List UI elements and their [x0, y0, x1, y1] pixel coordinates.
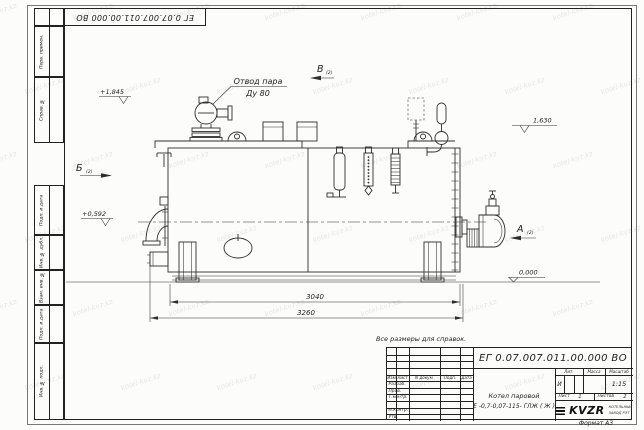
- front-top-valve: [157, 153, 171, 167]
- pump-fins: [470, 229, 478, 247]
- tb-col-izm: Изм: [387, 375, 396, 382]
- dimension-shell-length: 3040: [170, 284, 460, 306]
- tb-row-utv: Утв.: [387, 414, 411, 421]
- tb-scale-header: Масштаб: [605, 368, 633, 375]
- elev-1630: 1,630: [533, 117, 552, 125]
- tb-col-list: Лист: [396, 375, 409, 382]
- tb-sheets-label: Листов: [596, 393, 622, 400]
- view-a-ref: (2): [527, 230, 534, 236]
- burner-elbow: [143, 197, 168, 246]
- tb-row-prov: Пров.: [387, 388, 411, 395]
- tb-col-podp: Подп.: [440, 375, 460, 382]
- top-platform: [155, 141, 302, 148]
- lifting-lugs: [228, 132, 432, 141]
- kvzr-logo-text: KVZR: [569, 404, 604, 417]
- view-label-b: Б (2): [76, 163, 112, 178]
- company-name-line2: ЗАВОД РЭТ: [609, 411, 632, 416]
- tb-sheet-label: Лист: [557, 393, 577, 400]
- view-label-v: В (2): [310, 64, 334, 80]
- tb-row-blank: [387, 401, 411, 408]
- gauge-ladder-marks: [391, 158, 400, 183]
- tb-sheet-value: 1: [575, 393, 585, 400]
- dim-3040: 3040: [306, 293, 324, 301]
- tb-name-line2: Е -0,7-0,07-115- ГЛЖ ( Ж ): [473, 402, 555, 412]
- tb-product-name: Котел паровой Е -0,7-0,07-115- ГЛЖ ( Ж ): [473, 368, 555, 428]
- steam-outlet-callout: Отвод пара Ду 80: [213, 77, 287, 104]
- drawing-sheet: { "watermark": { "text": "kotel-kvz.kz" …: [0, 0, 644, 430]
- title-block: ЕГ 0.07.007.011.00.000 ВО Изм Лист N док…: [386, 347, 632, 420]
- tb-col-ndocum: N докум.: [409, 375, 440, 382]
- tb-row-razrab: Разраб.: [387, 381, 411, 388]
- rear-top-band: [408, 141, 455, 148]
- tb-company: KVZR КОТЕЛЬНЫЙ ЗАВОД РЭТ: [555, 400, 633, 421]
- view-a-letter: А: [516, 224, 524, 235]
- elev-0592: +0,592: [82, 210, 106, 218]
- elev-1845: +1,845: [100, 88, 124, 96]
- view-v-letter: В: [317, 64, 324, 75]
- view-v-ref: (2): [326, 70, 333, 76]
- view-b-letter: Б: [76, 163, 83, 174]
- tb-doc-number: ЕГ 0.07.007.011.00.000 ВО: [473, 348, 633, 368]
- tb-lit-value: И: [555, 375, 564, 393]
- tb-col-data: Дата: [460, 375, 473, 382]
- callout-line2: Ду 80: [245, 89, 270, 98]
- elevation-marks: +1,845 +0,592 1,630 0,000: [81, 88, 557, 282]
- feed-pump-motor: [456, 191, 505, 247]
- tb-scale-value: 1:15: [605, 375, 633, 393]
- tb-sheets-value: 2: [620, 393, 630, 400]
- tb-row-tkontr: Т.контр.: [387, 394, 411, 401]
- dimension-overall-length: 3260: [150, 252, 463, 322]
- gauge-graduation-dots: [368, 156, 370, 183]
- elev-0000: 0,000: [519, 269, 538, 277]
- tb-row-nkontr: Н.контр.: [387, 408, 411, 415]
- tb-name-line1: Котел паровой: [489, 391, 540, 402]
- rear-safety-valve-assembly: [408, 98, 448, 156]
- manhole: [224, 234, 252, 258]
- company-name: КОТЕЛЬНЫЙ ЗАВОД РЭТ: [609, 405, 632, 416]
- callout-line1: Отвод пара: [234, 77, 283, 86]
- tb-lit-header: Лит.: [555, 368, 583, 375]
- dim-3260: 3260: [297, 309, 315, 317]
- steam-outlet-valve: [190, 97, 232, 141]
- view-b-ref: (2): [86, 169, 93, 175]
- reference-note: Все размеры для справок.: [376, 335, 466, 343]
- boiler-shell: [155, 141, 460, 280]
- kvzr-logo-icon: [556, 406, 565, 415]
- view-label-a: А (2): [510, 224, 536, 240]
- tb-mass-header: Масса: [583, 368, 605, 375]
- water-level-gauges: [327, 147, 400, 197]
- safety-valve-boxes: [263, 122, 317, 141]
- format-label: Формат А3: [556, 420, 636, 427]
